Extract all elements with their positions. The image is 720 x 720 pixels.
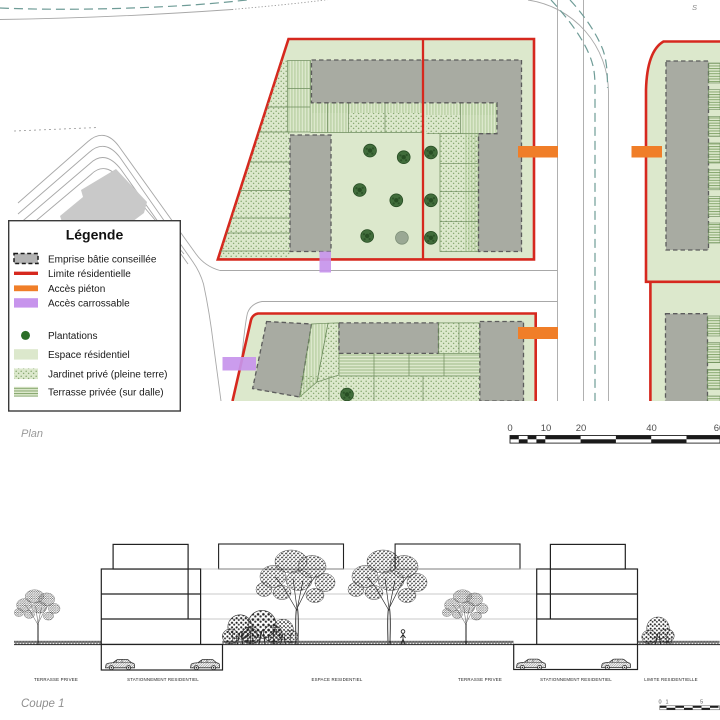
svg-text:Limite résidentielle: Limite résidentielle xyxy=(48,269,131,280)
svg-text:20: 20 xyxy=(576,423,587,434)
svg-text:Plan: Plan xyxy=(21,428,43,440)
svg-text:Terrasse privée (sur dalle): Terrasse privée (sur dalle) xyxy=(48,387,164,398)
svg-text:0: 0 xyxy=(507,423,512,434)
svg-text:Coupe 1: Coupe 1 xyxy=(21,698,64,710)
svg-text:0: 0 xyxy=(658,700,661,706)
svg-text:Accès carrossable: Accès carrossable xyxy=(48,299,130,310)
svg-text:LIMITE RESIDENTIELLE: LIMITE RESIDENTIELLE xyxy=(644,677,698,682)
svg-text:5: 5 xyxy=(700,700,703,706)
svg-text:Légende: Légende xyxy=(66,227,124,243)
svg-text:Accès piéton: Accès piéton xyxy=(48,284,105,295)
svg-text:STATIONNEMENT RESIDENTIEL: STATIONNEMENT RESIDENTIEL xyxy=(540,677,612,682)
svg-text:60: 60 xyxy=(714,423,720,434)
svg-text:10: 10 xyxy=(541,423,552,434)
svg-text:40: 40 xyxy=(646,423,657,434)
svg-text:Jardinet privé (pleine terre): Jardinet privé (pleine terre) xyxy=(48,370,168,381)
svg-text:Espace résidentiel: Espace résidentiel xyxy=(48,350,130,361)
svg-text:Emprise bâtie conseillée: Emprise bâtie conseillée xyxy=(48,254,157,265)
svg-text:Plantations: Plantations xyxy=(48,331,97,342)
svg-text:S: S xyxy=(692,3,697,12)
svg-text:1: 1 xyxy=(665,700,668,706)
svg-text:ESPACE RESIDENTIEL: ESPACE RESIDENTIEL xyxy=(311,677,362,682)
svg-text:STATIONNEMENT RESIDENTIEL: STATIONNEMENT RESIDENTIEL xyxy=(127,677,199,682)
svg-text:TERRASSE PRIVEE: TERRASSE PRIVEE xyxy=(34,677,78,682)
svg-text:TERRASSE PRIVEE: TERRASSE PRIVEE xyxy=(458,677,502,682)
